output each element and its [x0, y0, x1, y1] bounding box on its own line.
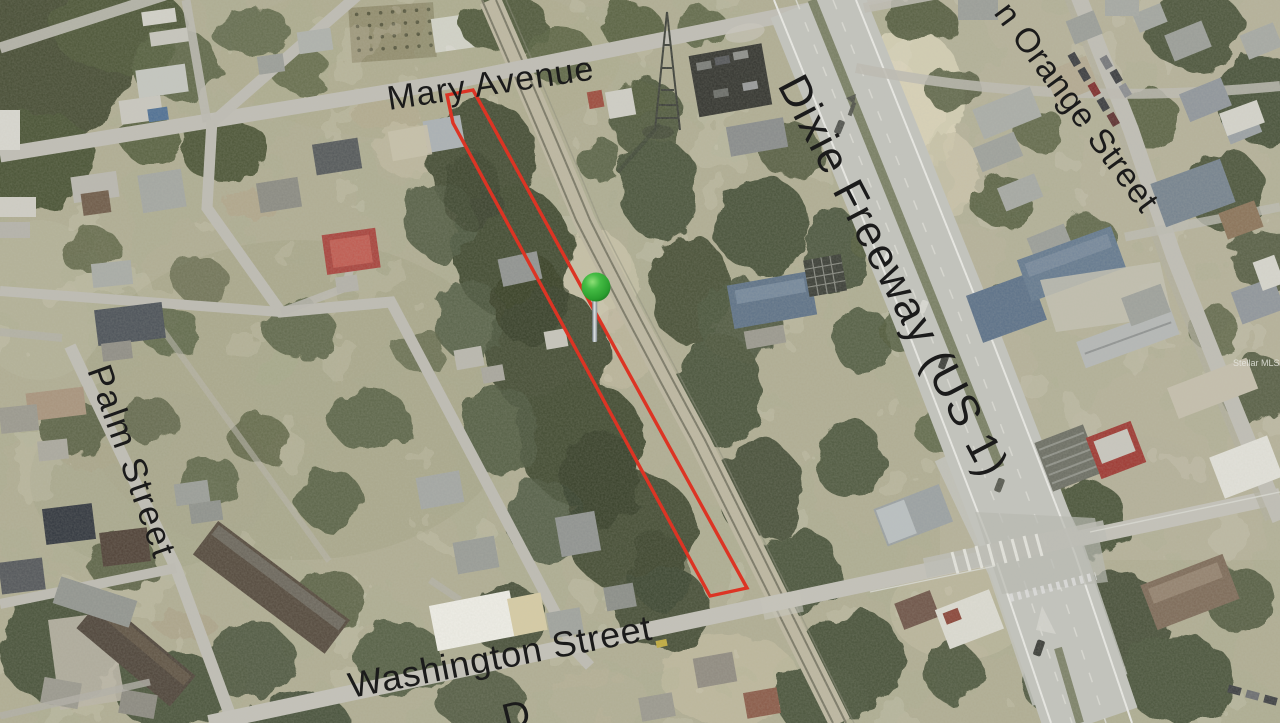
svg-text:Stellar MLS: Stellar MLS: [1233, 358, 1280, 368]
